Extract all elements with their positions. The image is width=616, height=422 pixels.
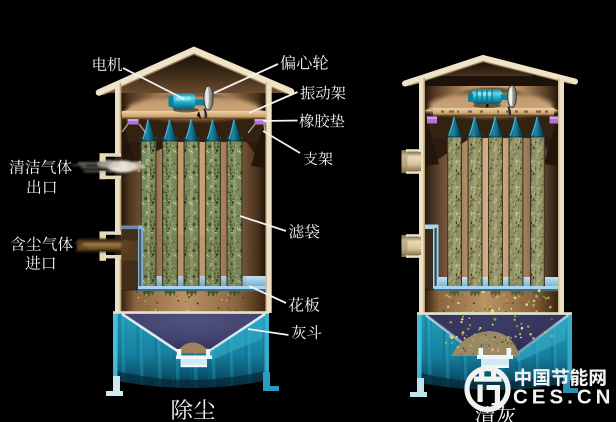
svg-text:CES.CN: CES.CN [513, 386, 614, 409]
